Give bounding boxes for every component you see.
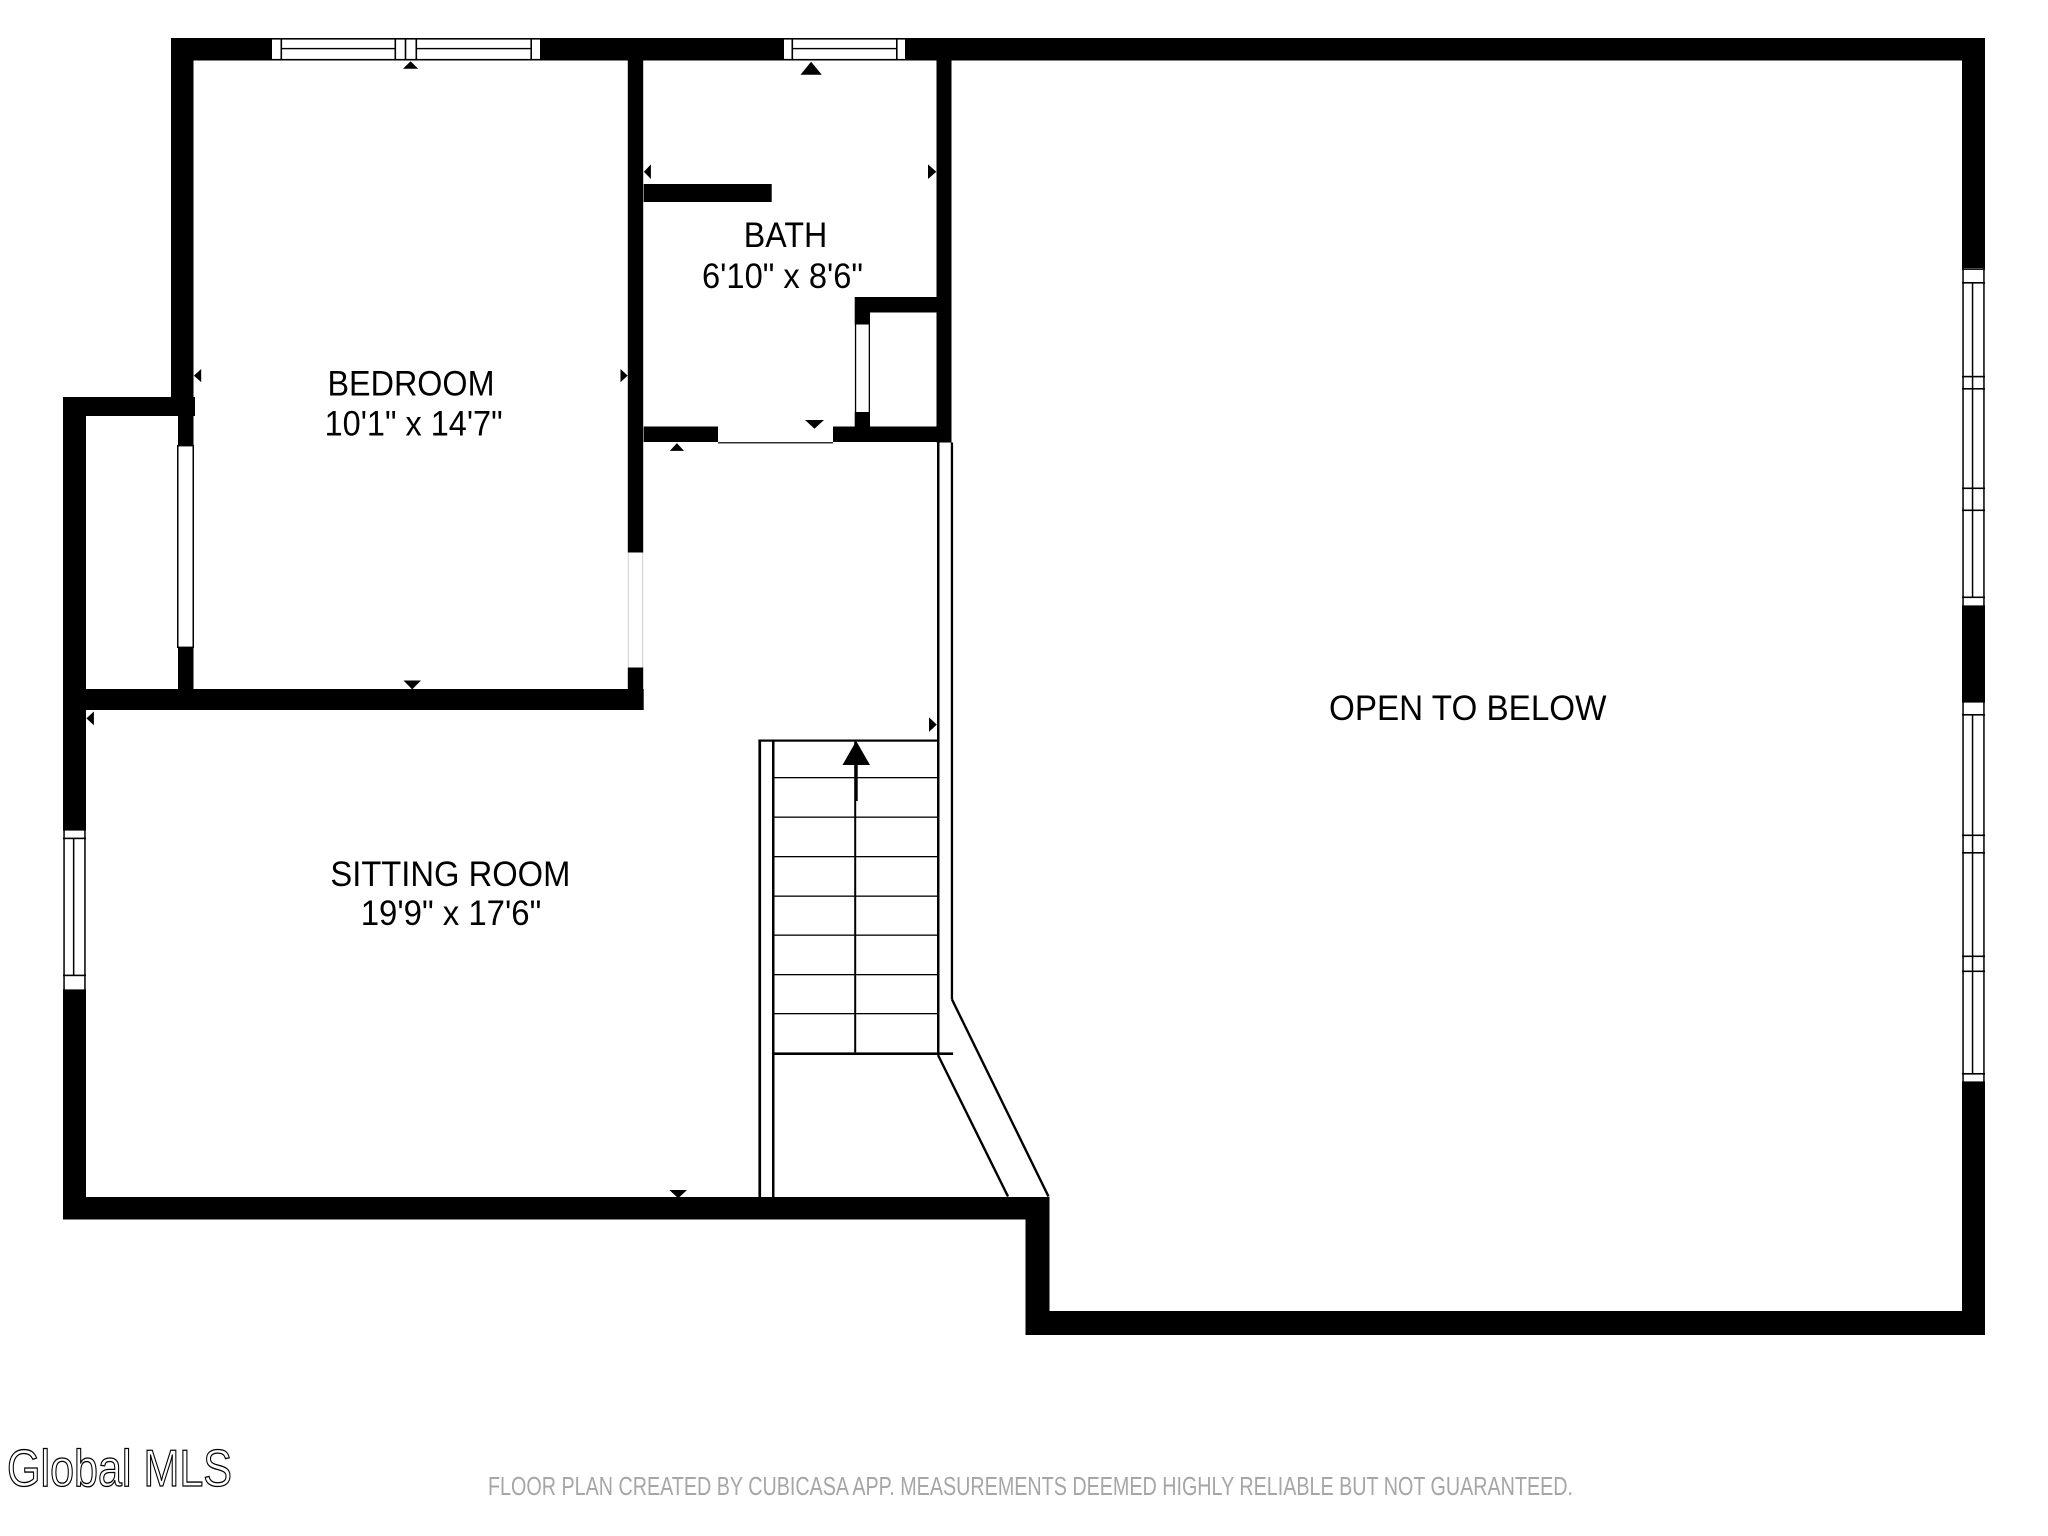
svg-text:10'1" x 14'7": 10'1" x 14'7" xyxy=(325,405,503,444)
svg-text:SITTING ROOM: SITTING ROOM xyxy=(330,855,570,894)
svg-text:19'9" x 17'6": 19'9" x 17'6" xyxy=(361,894,542,933)
svg-text:BEDROOM: BEDROOM xyxy=(328,365,495,404)
svg-text:OPEN TO BELOW: OPEN TO BELOW xyxy=(1329,689,1607,728)
svg-text:FLOOR PLAN CREATED BY CUBICASA: FLOOR PLAN CREATED BY CUBICASA APP. MEAS… xyxy=(488,1471,1573,1501)
svg-text:BATH: BATH xyxy=(744,216,828,255)
svg-text:Global MLS: Global MLS xyxy=(7,1440,232,1498)
svg-text:6'10" x 8'6": 6'10" x 8'6" xyxy=(702,257,863,296)
